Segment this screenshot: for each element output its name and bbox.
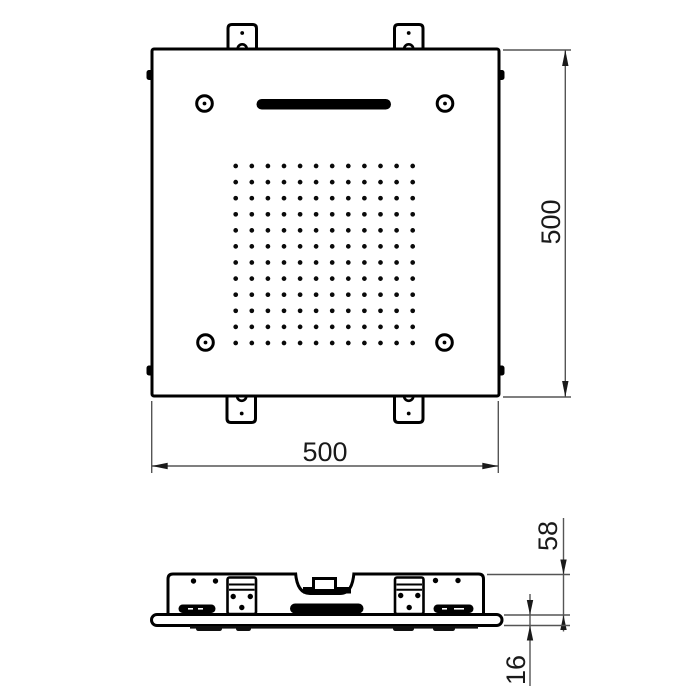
nozzle-dot — [346, 164, 351, 169]
nozzle-dot — [249, 196, 254, 201]
nozzle-dot — [282, 276, 287, 281]
nozzle-dot — [298, 292, 303, 297]
nozzle-dot — [282, 341, 287, 346]
nozzle-dot — [282, 244, 287, 249]
nozzle-dot — [394, 341, 399, 346]
nozzle-dot — [298, 341, 303, 346]
nozzle-dot — [249, 325, 254, 330]
nozzle-dot — [330, 180, 335, 185]
nozzle-dot — [394, 228, 399, 233]
nozzle-dot — [233, 164, 238, 169]
screw-icon — [198, 335, 214, 351]
nozzle-dot — [346, 325, 351, 330]
nozzle-dot — [378, 341, 383, 346]
nozzle-dot — [266, 292, 271, 297]
nozzle-dot — [330, 292, 335, 297]
nozzle-dot — [266, 244, 271, 249]
nozzle-dot — [266, 228, 271, 233]
nozzle-dot — [410, 260, 415, 265]
nozzle-dot — [314, 180, 319, 185]
finish-plate — [152, 615, 503, 626]
mounting-bracket-bottom-right — [395, 395, 424, 423]
nozzle-dot — [330, 228, 335, 233]
nozzle-dot — [362, 164, 367, 169]
nozzle-dot — [378, 292, 383, 297]
nozzle-dot — [233, 196, 238, 201]
nozzle-dot — [394, 292, 399, 297]
nozzle-dot — [249, 292, 254, 297]
nozzle-dot — [298, 244, 303, 249]
side-view: 58 16 — [152, 518, 571, 686]
waterfall-slot — [257, 99, 392, 110]
nozzle-dot — [282, 212, 287, 217]
mounting-bracket-top-right — [395, 25, 424, 50]
nozzle-dot — [249, 164, 254, 169]
nozzle-dot — [346, 292, 351, 297]
dimension-16-label: 16 — [501, 655, 531, 685]
nozzle-dot — [282, 260, 287, 265]
nozzle-dot — [282, 292, 287, 297]
nozzle-dot — [378, 325, 383, 330]
dimension-plate-16: 16 — [501, 594, 570, 686]
nozzle-dot — [266, 260, 271, 265]
nozzle-dot — [394, 325, 399, 330]
nozzle-dot — [346, 244, 351, 249]
nozzle-dot — [249, 341, 254, 346]
nozzle-dot — [378, 180, 383, 185]
nozzle-dot — [298, 308, 303, 313]
nozzle-dot — [314, 212, 319, 217]
nozzle-dot — [362, 180, 367, 185]
nozzle-dot — [266, 308, 271, 313]
nozzle-dot — [378, 244, 383, 249]
nozzle-dot — [314, 228, 319, 233]
nozzle-dot — [314, 244, 319, 249]
nozzle-dot — [233, 341, 238, 346]
nozzle-dot — [282, 164, 287, 169]
nozzle-dot — [330, 308, 335, 313]
nozzle-dot — [362, 212, 367, 217]
nozzle-dot — [378, 276, 383, 281]
nozzle-dot — [266, 276, 271, 281]
nozzle-dot — [346, 308, 351, 313]
nozzle-dot — [346, 196, 351, 201]
nozzle-dot — [298, 276, 303, 281]
top-view: 500 500 — [147, 25, 572, 474]
mounting-bracket-top-left — [228, 25, 257, 50]
nozzle-dot — [330, 164, 335, 169]
nozzle-dot — [298, 212, 303, 217]
under-plate-details — [190, 626, 478, 631]
nozzle-dot — [282, 228, 287, 233]
nozzle-dot — [233, 276, 238, 281]
screw-icon — [197, 96, 213, 112]
nozzle-dot — [330, 196, 335, 201]
nozzle-dot — [362, 292, 367, 297]
nozzle-dot — [394, 244, 399, 249]
nozzle-dot — [249, 244, 254, 249]
nozzle-dot — [410, 180, 415, 185]
nozzle-dot — [282, 325, 287, 330]
nozzle-dot — [233, 228, 238, 233]
nozzle-dot — [378, 196, 383, 201]
nozzle-dot — [249, 276, 254, 281]
nozzle-dot — [394, 212, 399, 217]
nozzle-dot — [282, 196, 287, 201]
nozzle-dot — [362, 325, 367, 330]
nozzle-dot — [410, 196, 415, 201]
screw-icon — [437, 96, 453, 112]
nozzle-dot — [378, 164, 383, 169]
nozzle-dot — [266, 196, 271, 201]
nozzle-dot — [378, 308, 383, 313]
nozzle-dot — [298, 260, 303, 265]
nozzle-dot — [394, 276, 399, 281]
nozzle-dot — [410, 228, 415, 233]
nozzle-dot — [266, 325, 271, 330]
nozzle-dot — [282, 180, 287, 185]
nozzle-dot — [233, 292, 238, 297]
nozzle-dot — [249, 212, 254, 217]
nozzle-dot — [314, 164, 319, 169]
nozzle-dot — [362, 244, 367, 249]
interior-clip-left — [228, 578, 257, 615]
nozzle-dot — [410, 276, 415, 281]
nozzle-dot — [346, 341, 351, 346]
dimension-width: 500 — [152, 401, 499, 473]
nozzle-dot — [410, 308, 415, 313]
nozzle-dot — [233, 325, 238, 330]
nozzle-dot — [282, 308, 287, 313]
nozzle-dot — [346, 228, 351, 233]
mounting-bracket-bottom-left — [227, 395, 256, 423]
nozzle-dot — [394, 164, 399, 169]
nozzle-dot — [378, 212, 383, 217]
nozzle-dot — [266, 341, 271, 346]
nozzle-dot — [330, 325, 335, 330]
nozzle-dot — [394, 196, 399, 201]
nozzle-dot — [233, 308, 238, 313]
nozzle-dot — [314, 325, 319, 330]
nozzle-dot — [362, 196, 367, 201]
nozzle-dot — [314, 341, 319, 346]
nozzle-dot — [362, 276, 367, 281]
nozzle-dot — [394, 308, 399, 313]
nozzle-dot — [298, 196, 303, 201]
nozzle-dot — [298, 164, 303, 169]
nozzle-dot — [410, 244, 415, 249]
nozzle-dot — [298, 180, 303, 185]
dimension-height-label: 500 — [536, 199, 566, 244]
nozzle-dot — [362, 341, 367, 346]
nozzle-dot — [362, 228, 367, 233]
nozzle-dot — [233, 180, 238, 185]
nozzle-dot — [410, 164, 415, 169]
connector-tab — [314, 579, 336, 591]
nozzle-dot — [394, 260, 399, 265]
nozzle-dot — [346, 180, 351, 185]
nozzle-dot — [249, 180, 254, 185]
nozzle-dot — [249, 260, 254, 265]
nozzle-dot — [410, 325, 415, 330]
nozzle-dot — [410, 292, 415, 297]
dimension-width-label: 500 — [302, 437, 347, 467]
nozzle-dot — [378, 260, 383, 265]
nozzle-dot — [298, 228, 303, 233]
nozzle-dot — [266, 212, 271, 217]
dimension-58-label: 58 — [533, 521, 563, 551]
shower-head-technical-drawing: 500 500 — [0, 0, 700, 700]
nozzle-dot — [410, 341, 415, 346]
nozzle-dot — [314, 276, 319, 281]
nozzle-dot — [362, 260, 367, 265]
nozzle-dot — [233, 244, 238, 249]
nozzle-dot — [378, 228, 383, 233]
nozzle-dot — [346, 276, 351, 281]
nozzle-dot — [346, 260, 351, 265]
nozzle-dot — [330, 341, 335, 346]
nozzle-dot — [330, 276, 335, 281]
drawing-svg: 500 500 — [0, 0, 700, 700]
nozzle-dot — [346, 212, 351, 217]
nozzle-dot — [362, 308, 367, 313]
nozzle-dot — [410, 212, 415, 217]
nozzle-dot — [330, 260, 335, 265]
nozzle-dot — [249, 308, 254, 313]
nozzle-dot — [394, 180, 399, 185]
nozzle-dot — [266, 164, 271, 169]
nozzle-dot — [330, 212, 335, 217]
nozzle-dot — [233, 260, 238, 265]
nozzle-dot — [314, 308, 319, 313]
nozzle-dot — [314, 292, 319, 297]
screw-icon — [437, 335, 453, 351]
nozzle-dot — [314, 260, 319, 265]
nozzle-dot — [249, 228, 254, 233]
nozzle-dot — [233, 212, 238, 217]
inlet-notch — [296, 571, 355, 594]
dimension-height: 500 — [503, 50, 571, 397]
nozzle-dot — [330, 244, 335, 249]
interior-clip-right — [395, 578, 424, 615]
nozzle-dot — [266, 180, 271, 185]
nozzle-dot — [298, 325, 303, 330]
nozzle-dot — [314, 196, 319, 201]
